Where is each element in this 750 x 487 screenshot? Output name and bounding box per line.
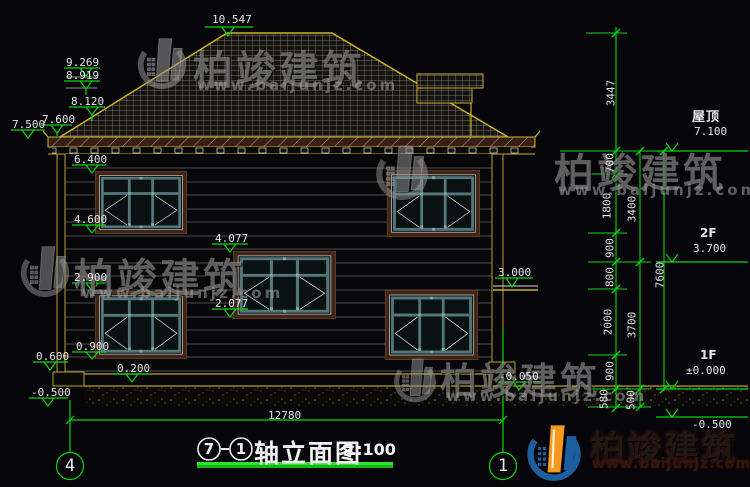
- axis-number-left: 4: [65, 456, 75, 476]
- watermark-logo-icon: [16, 241, 74, 299]
- dim-segment-label: 3400: [626, 196, 639, 223]
- floor1-label: 1F: [700, 348, 717, 362]
- floor2-label: 2F: [700, 226, 717, 240]
- dim-segment-label: 800: [604, 267, 617, 287]
- watermark-url: www.baijunjz.com: [82, 284, 283, 302]
- floor1-level-value: ±0.000: [686, 364, 726, 377]
- elevation-drawing: [0, 0, 750, 487]
- level-label: 10.547: [212, 13, 252, 26]
- title-axis-from: 7: [204, 440, 214, 458]
- level-label: 4.600: [74, 213, 107, 226]
- baijun-logo-url: www.baijunjz.com: [592, 456, 750, 472]
- dim-segment-label: 500: [625, 390, 638, 410]
- overall-dim-label: 12780: [268, 409, 301, 422]
- level-label: 3.000: [498, 266, 531, 279]
- watermark-url: www.baijunjz.com: [558, 181, 750, 199]
- level-label: 9.269: [66, 56, 99, 69]
- window-upper-left: [95, 171, 186, 233]
- level-label: 7.600: [42, 113, 75, 126]
- floor2-level-value: 3.700: [693, 242, 726, 255]
- level-label: 6.400: [74, 153, 107, 166]
- dim-segment-label: 900: [604, 361, 617, 381]
- dim-segment-label: 7600: [654, 262, 667, 289]
- dim-segment-label: 700: [604, 153, 617, 173]
- roof-level-name: 屋顶: [692, 106, 720, 125]
- level-label: 0.600: [36, 350, 69, 363]
- watermark-logo-icon: [133, 33, 191, 91]
- dim-segment-label: 900: [604, 238, 617, 258]
- dim-segment-label: 3700: [626, 312, 639, 339]
- roof-level-value: 7.100: [694, 125, 727, 138]
- level-label: -0.500: [31, 386, 71, 399]
- watermark-url: www.baijunjz.com: [446, 387, 647, 405]
- watermark-logo-icon: [371, 140, 433, 202]
- dim-segment-label: 2000: [602, 309, 615, 336]
- cad-elevation-screenshot: 柏竣建筑 www.baijunjz.com 柏竣建筑 www.baijunjz.…: [0, 0, 750, 487]
- level-label: 2.077: [215, 297, 248, 310]
- watermark-url: www.baijunjz.com: [197, 76, 398, 94]
- window-lower-right: [385, 291, 477, 360]
- level-label: 0.900: [76, 340, 109, 353]
- axis-number-right: 1: [498, 456, 508, 476]
- level-label: 8.120: [71, 95, 104, 108]
- title-axis-to: 1: [236, 440, 246, 458]
- level-label: 7.500: [12, 118, 45, 131]
- level-label: 4.077: [215, 232, 248, 245]
- level-label: 8.919: [66, 69, 99, 82]
- watermark-logo-icon: [390, 354, 440, 404]
- level-label: 2.900: [74, 271, 107, 284]
- dim-segment-label: 580: [598, 389, 611, 409]
- baijun-logo-icon: [522, 419, 586, 483]
- level-label: 0.200: [117, 362, 150, 375]
- level-label: -0.050: [499, 370, 539, 383]
- dim-segment-label: 3447: [605, 80, 618, 107]
- dim-segment-label: 1800: [601, 193, 614, 220]
- drawing-scale: 1:100: [345, 440, 396, 459]
